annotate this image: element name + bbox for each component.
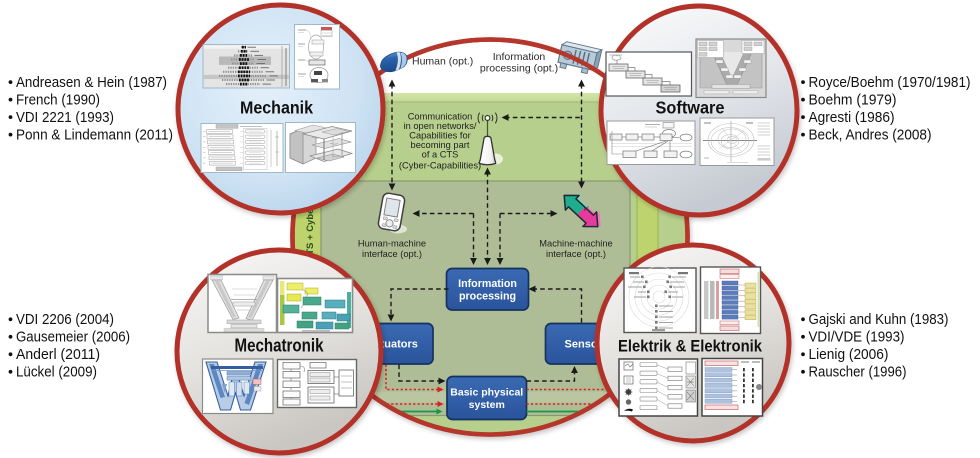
svg-text:Capabilities for: Capabilities for bbox=[409, 131, 471, 141]
svg-text:Boehm (1979): Boehm (1979) bbox=[809, 92, 897, 108]
svg-text:Communication: Communication bbox=[408, 112, 473, 122]
svg-text:VDI 2206 (2004): VDI 2206 (2004) bbox=[16, 312, 114, 328]
svg-text:Lienig (2006): Lienig (2006) bbox=[809, 347, 889, 363]
svg-text:Anderl (2011): Anderl (2011) bbox=[16, 347, 100, 363]
svg-text:of a CTS: of a CTS bbox=[422, 150, 459, 160]
svg-text:Basic physical: Basic physical bbox=[450, 387, 523, 399]
svg-text:Lückel (2009): Lückel (2009) bbox=[16, 365, 97, 381]
svg-text:Information: Information bbox=[458, 278, 517, 290]
svg-text:Human-machine: Human-machine bbox=[358, 239, 426, 249]
svg-text:interface (opt.): interface (opt.) bbox=[362, 249, 422, 259]
svg-text:Beck, Andres (2008): Beck, Andres (2008) bbox=[809, 127, 932, 143]
svg-text:processing: processing bbox=[459, 291, 516, 303]
svg-text:(Cyber-Capabilities): (Cyber-Capabilities) bbox=[399, 161, 481, 171]
svg-text:Mechanik: Mechanik bbox=[240, 98, 313, 118]
svg-text:Elektrik & Elektronik: Elektrik & Elektronik bbox=[618, 338, 763, 356]
svg-text:Rauscher (1996): Rauscher (1996) bbox=[809, 365, 907, 381]
svg-text:Human (opt.): Human (opt.) bbox=[412, 56, 473, 68]
svg-text:Information: Information bbox=[493, 51, 546, 63]
svg-text:Gajski and Kuhn (1983): Gajski and Kuhn (1983) bbox=[809, 312, 949, 328]
svg-text:Agresti (1986): Agresti (1986) bbox=[809, 110, 895, 126]
svg-text:French (1990): French (1990) bbox=[16, 92, 100, 108]
svg-text:Software: Software bbox=[656, 98, 725, 118]
svg-text:Gausemeier (2006): Gausemeier (2006) bbox=[16, 330, 130, 346]
svg-text:Andreasen & Hein (1987): Andreasen & Hein (1987) bbox=[16, 75, 167, 91]
svg-text:Royce/Boehm (1970/1981): Royce/Boehm (1970/1981) bbox=[809, 75, 971, 91]
svg-text:Mechatronik: Mechatronik bbox=[235, 336, 325, 356]
svg-text:interface (opt.): interface (opt.) bbox=[546, 249, 606, 259]
svg-text:VDI/VDE (1993): VDI/VDE (1993) bbox=[809, 330, 905, 346]
svg-text:system: system bbox=[469, 399, 505, 411]
svg-text:VDI 2221 (1993): VDI 2221 (1993) bbox=[16, 110, 114, 126]
svg-text:Machine-machine: Machine-machine bbox=[539, 239, 612, 249]
svg-text:in open networks/: in open networks/ bbox=[404, 121, 477, 131]
svg-text:becoming part: becoming part bbox=[411, 140, 470, 150]
svg-text:processing (opt.): processing (opt.) bbox=[480, 63, 558, 75]
svg-text:Ponn & Lindemann (2011): Ponn & Lindemann (2011) bbox=[16, 127, 173, 143]
